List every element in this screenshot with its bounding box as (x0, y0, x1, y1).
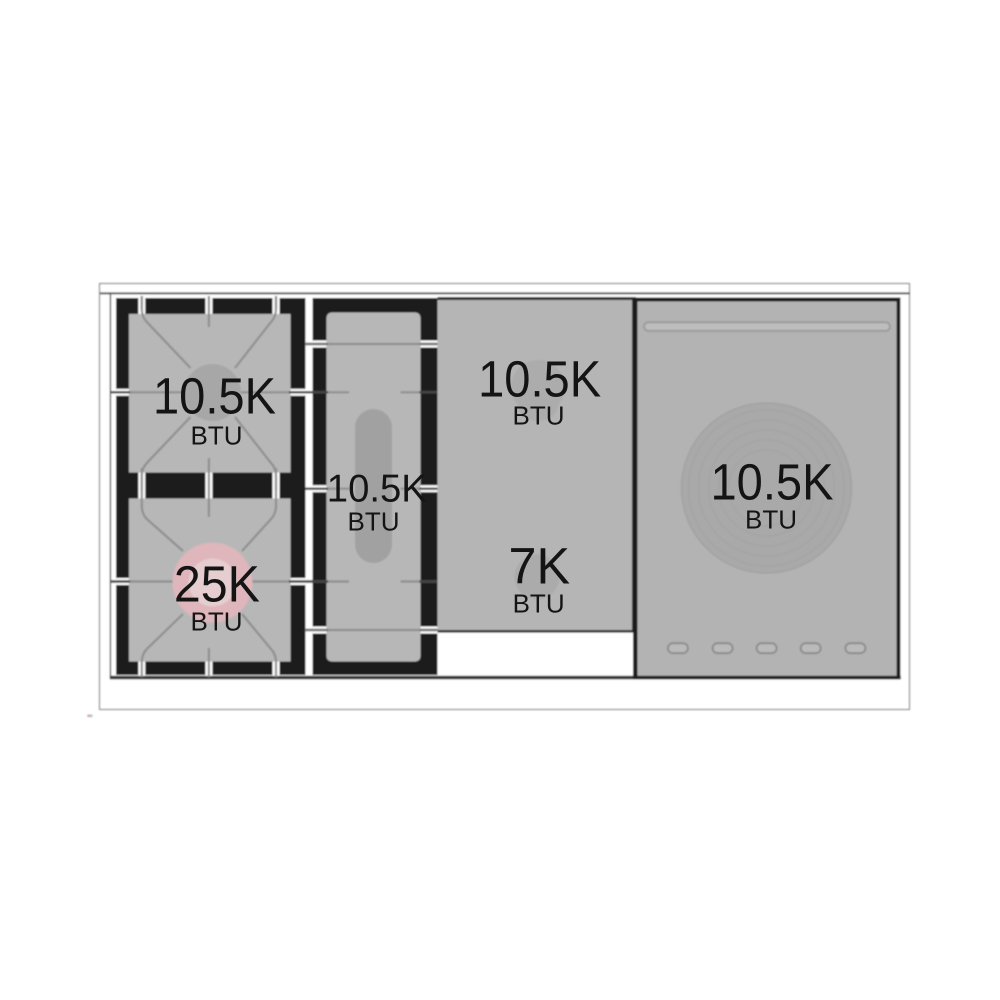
svg-text:10.5K: 10.5K (327, 468, 427, 511)
svg-text:BTU: BTU (513, 401, 565, 431)
svg-text:BTU: BTU (191, 421, 243, 451)
svg-text:10.5K: 10.5K (478, 351, 601, 408)
svg-text:BTU: BTU (513, 589, 565, 619)
svg-text:BTU: BTU (348, 507, 400, 537)
svg-text:25K: 25K (174, 556, 260, 613)
svg-text:7K: 7K (509, 538, 571, 595)
svg-text:BTU: BTU (191, 607, 243, 637)
svg-text:10.5K: 10.5K (711, 454, 834, 511)
svg-text:10.5K: 10.5K (153, 368, 276, 425)
svg-text:BTU: BTU (745, 505, 797, 535)
